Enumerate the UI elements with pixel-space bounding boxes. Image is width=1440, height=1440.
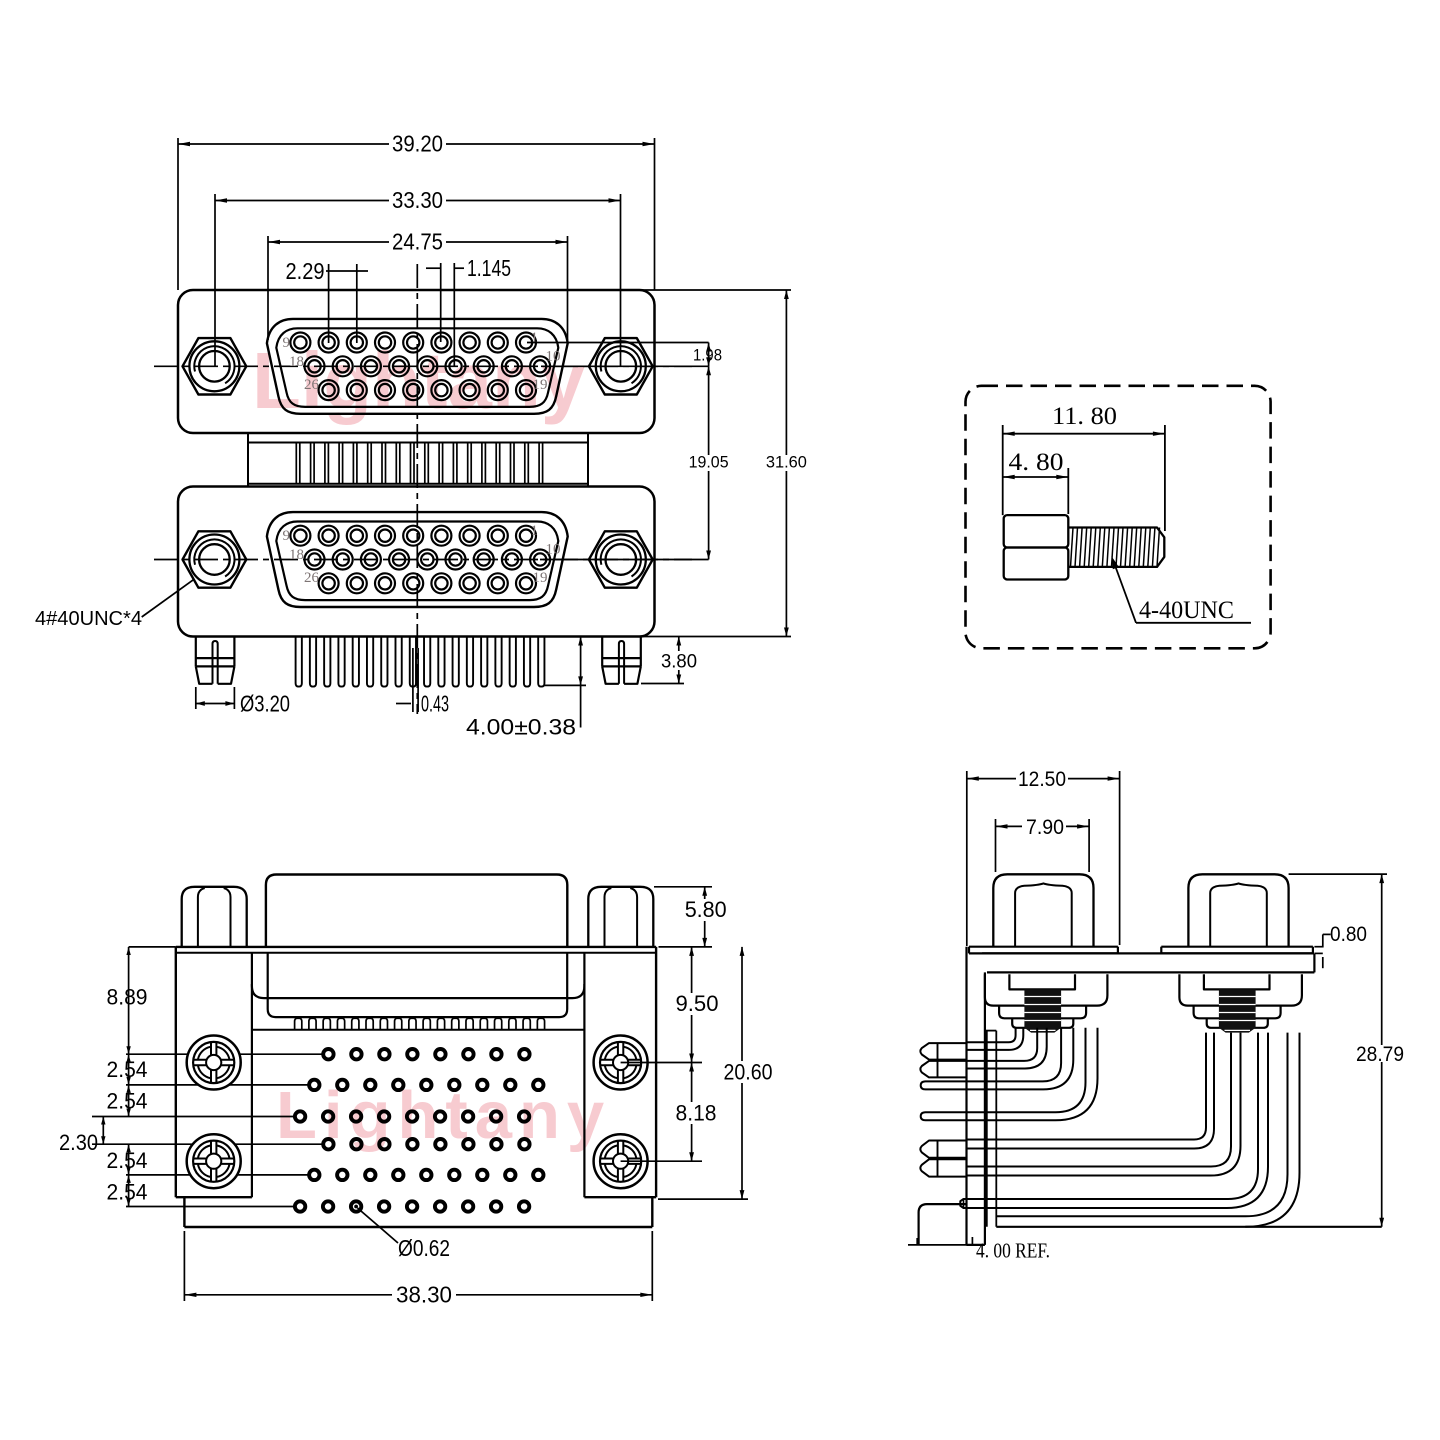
- svg-text:4#40UNC*4: 4#40UNC*4: [35, 608, 142, 630]
- svg-text:18: 18: [289, 354, 304, 370]
- svg-text:4. 80: 4. 80: [1009, 449, 1064, 476]
- svg-text:2.54: 2.54: [107, 1057, 148, 1082]
- svg-text:33.30: 33.30: [392, 187, 443, 213]
- svg-text:31.60: 31.60: [766, 453, 807, 472]
- svg-text:19.05: 19.05: [689, 453, 729, 472]
- svg-text:11. 80: 11. 80: [1052, 403, 1117, 430]
- svg-text:2.54: 2.54: [107, 1180, 148, 1205]
- svg-text:10: 10: [546, 542, 561, 558]
- svg-text:4.00±0.38: 4.00±0.38: [466, 715, 576, 740]
- svg-text:1.98: 1.98: [693, 346, 722, 365]
- svg-text:3.80: 3.80: [661, 652, 697, 673]
- svg-text:28.79: 28.79: [1356, 1043, 1404, 1066]
- svg-text:1: 1: [531, 330, 539, 346]
- svg-text:39.20: 39.20: [392, 131, 443, 157]
- svg-text:12.50: 12.50: [1018, 768, 1066, 791]
- svg-text:2.54: 2.54: [107, 1089, 148, 1114]
- svg-text:1: 1: [531, 523, 539, 539]
- svg-text:Ø3.20: Ø3.20: [240, 691, 290, 717]
- svg-text:7.90: 7.90: [1026, 816, 1064, 839]
- svg-text:24.75: 24.75: [392, 229, 443, 255]
- svg-text:19: 19: [533, 377, 548, 393]
- svg-text:19: 19: [533, 570, 548, 586]
- svg-text:8.18: 8.18: [676, 1101, 717, 1126]
- svg-text:Ø0.62: Ø0.62: [398, 1235, 450, 1261]
- svg-text:26: 26: [304, 377, 320, 393]
- svg-text:4-40UNC: 4-40UNC: [1139, 597, 1234, 624]
- svg-text:0.43: 0.43: [421, 691, 449, 717]
- svg-text:4. 00 REF.: 4. 00 REF.: [976, 1239, 1050, 1263]
- svg-text:5.80: 5.80: [685, 897, 727, 922]
- svg-text:10: 10: [546, 348, 561, 364]
- svg-text:2.54: 2.54: [107, 1148, 148, 1173]
- svg-text:9: 9: [283, 335, 291, 351]
- svg-text:8.89: 8.89: [107, 985, 148, 1010]
- svg-text:1.145: 1.145: [467, 255, 511, 281]
- svg-text:38.30: 38.30: [396, 1282, 452, 1308]
- svg-text:2.29: 2.29: [286, 258, 325, 284]
- svg-text:2.30: 2.30: [59, 1130, 98, 1155]
- svg-text:26: 26: [304, 570, 320, 586]
- svg-text:20.60: 20.60: [724, 1060, 773, 1085]
- svg-text:18: 18: [289, 547, 304, 563]
- svg-text:9.50: 9.50: [676, 991, 719, 1016]
- svg-text:9: 9: [283, 528, 291, 544]
- svg-text:0.80: 0.80: [1330, 923, 1367, 946]
